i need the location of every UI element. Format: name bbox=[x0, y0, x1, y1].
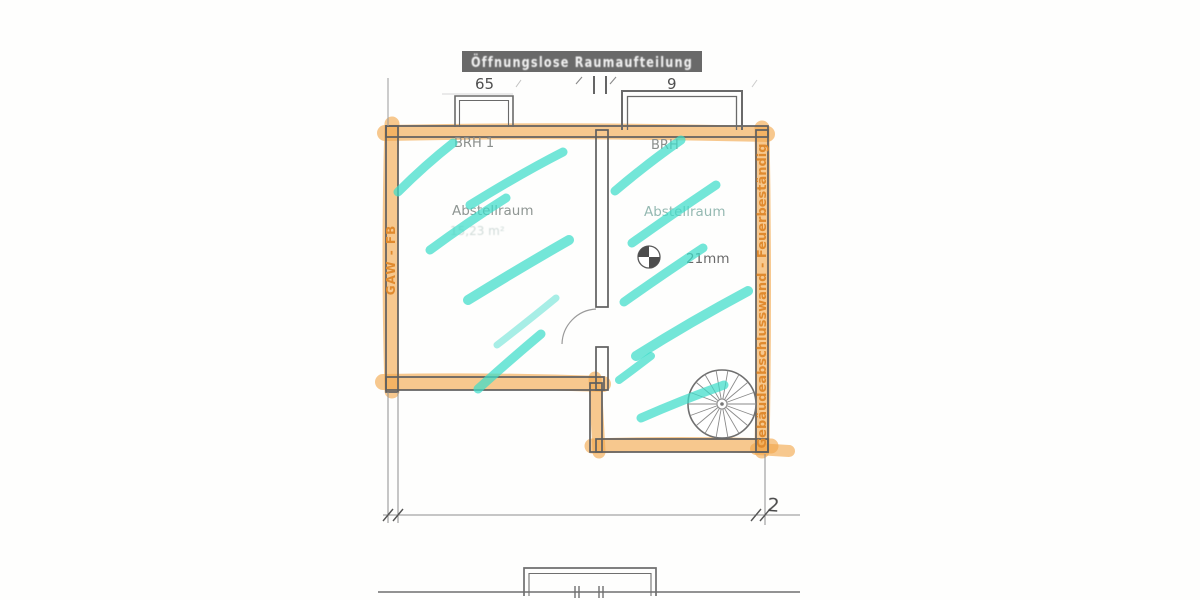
stair-center-dot bbox=[720, 402, 724, 406]
centroid-symbol bbox=[638, 246, 660, 268]
centroid-quadrant-topleft bbox=[638, 246, 649, 257]
marker-stroke bbox=[636, 291, 748, 356]
spiral-staircase bbox=[688, 370, 756, 438]
marker-stroke bbox=[398, 143, 453, 192]
brh1-label: BRH 1 bbox=[454, 136, 494, 151]
bottom-structure bbox=[378, 568, 800, 598]
marker-stroke bbox=[497, 298, 556, 345]
dim-2-label: 2 bbox=[767, 494, 781, 517]
title-banner-text: Öffnungslose Raumaufteilung bbox=[471, 53, 693, 71]
marker-stroke bbox=[624, 248, 703, 302]
door-swing-arc bbox=[562, 309, 596, 344]
floorplan-scan: 65 9 2 BRH 1 BRH Abstellraum 15,23 m² Ab… bbox=[0, 0, 1200, 600]
tick-9-right bbox=[752, 80, 757, 87]
left-wall-label: GAW - FB bbox=[384, 225, 398, 296]
tick-middle-left bbox=[576, 77, 582, 84]
highlight-top-wall bbox=[385, 131, 767, 134]
highlight-bottom-left-wall bbox=[383, 381, 603, 384]
marker-stroke bbox=[470, 152, 563, 205]
title-banner: Öffnungslose Raumaufteilung bbox=[462, 51, 702, 72]
highlight-bottom-right-wall bbox=[592, 445, 771, 447]
right-wall-label: Gebäudeabschlusswand - Feuerbeständig bbox=[754, 144, 769, 449]
marker-stroke bbox=[468, 240, 569, 300]
tick-65-right bbox=[516, 80, 521, 87]
tick-middle-right bbox=[610, 77, 616, 84]
floorplan-drawing: 65 9 2 BRH 1 BRH Abstellraum 15,23 m² Ab… bbox=[0, 0, 1200, 600]
dim-65-label: 65 bbox=[475, 75, 494, 93]
dim-9-label: 9 bbox=[667, 75, 677, 93]
wall-middle-upper bbox=[596, 130, 608, 307]
centroid-quadrant-bottomright bbox=[649, 257, 660, 268]
marker-stroke bbox=[615, 140, 681, 191]
window-projection-left-inner bbox=[460, 101, 509, 128]
